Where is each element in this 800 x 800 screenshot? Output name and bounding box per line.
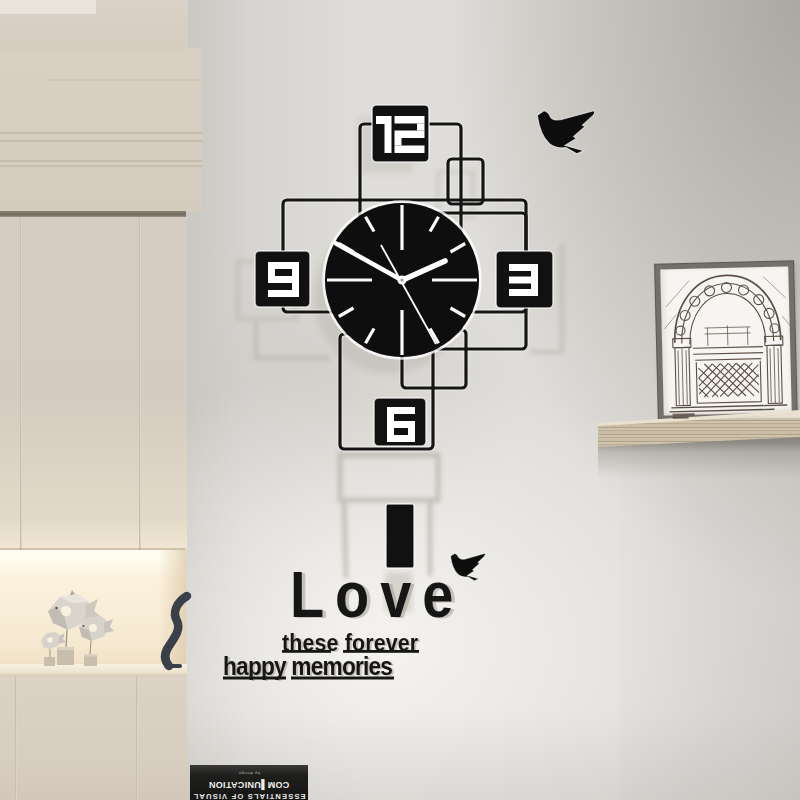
- svg-text:happy memories: happy memories: [223, 652, 393, 681]
